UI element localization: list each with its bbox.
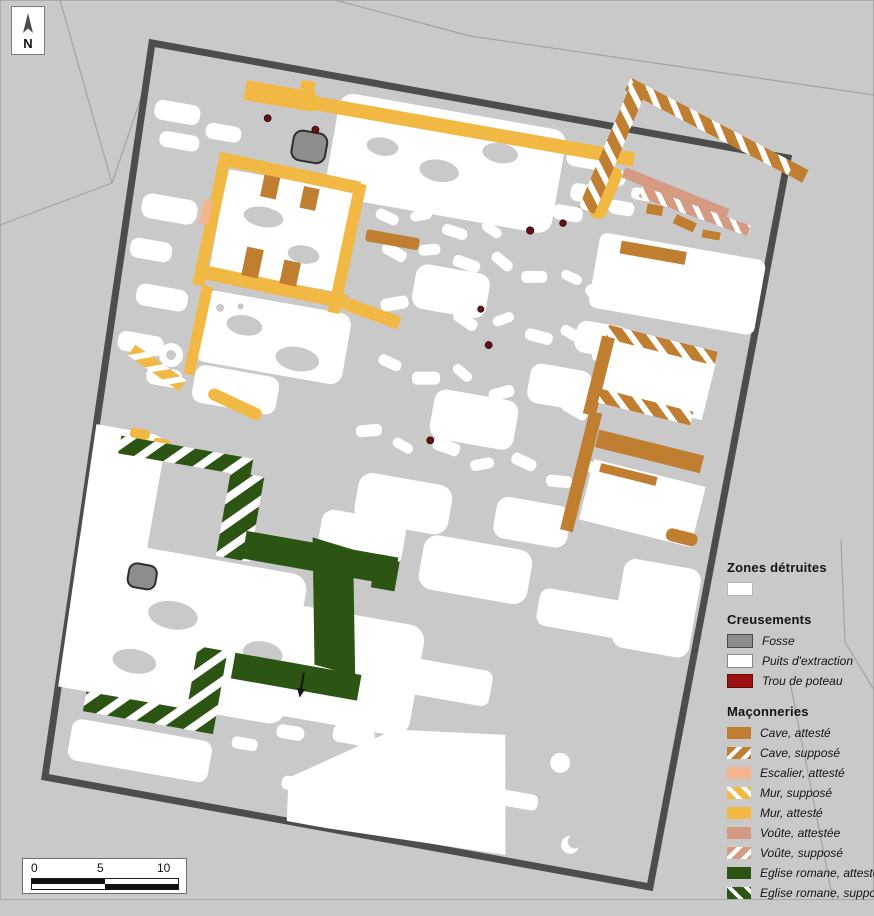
- legend-item-puits-extraction: Puits d'extraction: [727, 651, 874, 671]
- trou-de-poteau-swatch: [727, 674, 753, 688]
- scale-bar: 0 5 10: [22, 858, 187, 894]
- scale-bar-segments: [31, 878, 179, 890]
- fosse-swatch: [727, 634, 753, 648]
- legend-item-cave-atteste: Cave, attesté: [727, 723, 874, 743]
- legend-item-eglise-romane-suppose: Eglise romane, supposé: [727, 883, 874, 903]
- legend-item-mur-atteste: Mur, attesté: [727, 803, 874, 823]
- cave-suppose-swatch: [727, 747, 751, 759]
- legend-section-zones: Zones détruites: [727, 560, 874, 599]
- eglise-romane-atteste-swatch: [727, 867, 751, 879]
- legend-item-voute-suppose: Voûte, supposé: [727, 843, 874, 863]
- eglise-romane-suppose-swatch: [727, 887, 751, 899]
- scale-tick-0: 0: [31, 861, 38, 875]
- legend-title-zones: Zones détruites: [727, 560, 874, 575]
- cave-atteste-swatch: [727, 727, 751, 739]
- mur-suppose-swatch: [727, 787, 751, 799]
- puits-extraction-swatch: [727, 654, 753, 668]
- legend-item-eglise-romane-atteste: Eglise romane, attesté: [727, 863, 874, 883]
- north-arrow: N: [11, 6, 45, 55]
- scale-tick-5: 5: [97, 861, 104, 875]
- legend-item-mur-suppose: Mur, supposé: [727, 783, 874, 803]
- voute-suppose-swatch: [727, 847, 751, 859]
- legend-title-maconneries: Maçonneries: [727, 704, 874, 719]
- legend-item-voute-attestee: Voûte, attestée: [727, 823, 874, 843]
- legend-section-maconneries: Maçonneries Cave, attesté Cave, supposé …: [727, 704, 874, 903]
- voute-attestee-swatch: [727, 827, 751, 839]
- zones-detruites-swatch: [727, 582, 753, 596]
- legend-title-creusements: Creusements: [727, 612, 874, 627]
- legend-item-cave-suppose: Cave, supposé: [727, 743, 874, 763]
- north-label: N: [23, 36, 32, 51]
- north-needle-icon: [23, 13, 33, 33]
- legend-section-creusements: Creusements Fosse Puits d'extraction Tro…: [727, 612, 874, 691]
- legend-item-zones-detruites: [727, 579, 874, 599]
- mur-atteste-swatch: [727, 807, 751, 819]
- legend: Zones détruites Creusements Fosse Puits …: [727, 560, 874, 916]
- legend-item-escalier-atteste: Escalier, attesté: [727, 763, 874, 783]
- scale-tick-10: 10: [157, 861, 170, 875]
- legend-item-trou-de-poteau: Trou de poteau: [727, 671, 874, 691]
- escalier-atteste-swatch: [727, 767, 751, 779]
- legend-item-fosse: Fosse: [727, 631, 874, 651]
